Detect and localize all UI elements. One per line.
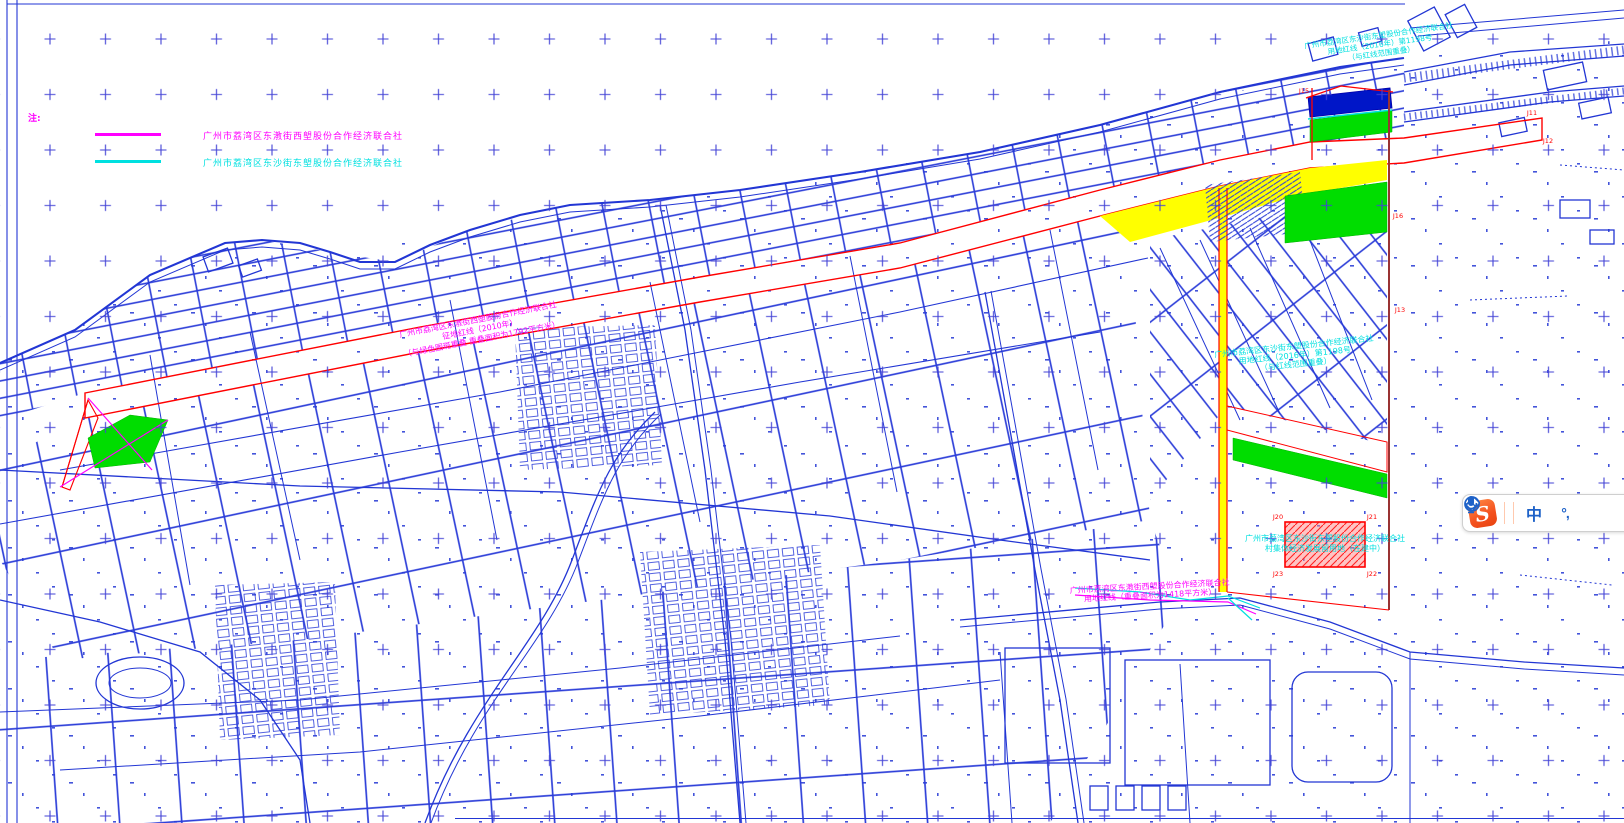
vertex-j20: J20 — [1272, 513, 1283, 521]
legend-swatch-cyan — [95, 160, 161, 163]
legend-label-east-coop: 广州市荔湾区东沙街东塱股份合作经济联合社 — [203, 156, 403, 169]
microphone-icon — [1463, 495, 1479, 514]
survey-grid-crosses — [0, 0, 1624, 823]
vertex-j16: J16 — [1392, 212, 1403, 220]
parcel-label-line2: 村集体经济发展留用地（在建中） — [1265, 543, 1385, 553]
vertex-j15: J15 — [1298, 87, 1309, 95]
vertex-j22: J22 — [1366, 570, 1377, 578]
vertex-j12: J12 — [1542, 137, 1553, 145]
legend-note: 注: — [28, 111, 41, 124]
sogou-input-toolbar[interactable]: S 中 °, — [1462, 494, 1624, 532]
legend-label-west-coop: 广州市荔湾区东漖街西塱股份合作经济联合社 — [203, 129, 403, 142]
vertex-j21: J21 — [1366, 513, 1377, 521]
chinese-mode-button[interactable]: 中 — [1523, 500, 1545, 526]
vertex-j11: J11 — [1526, 109, 1537, 117]
emoji-button[interactable] — [1585, 500, 1607, 526]
cad-application-window: 广州市荔湾区东漖街西塱股份合作经济联合社 征地红线（2010年） （与绿色图斑重… — [0, 0, 1624, 823]
legend-swatch-magenta — [95, 133, 161, 136]
toolbar-separator — [1504, 502, 1514, 524]
vertex-j23: J23 — [1272, 570, 1283, 578]
cad-drawing-canvas[interactable]: 广州市荔湾区东漖街西塱股份合作经济联合社 征地红线（2010年） （与绿色图斑重… — [0, 0, 1624, 823]
skin-eraser-button[interactable] — [1616, 500, 1624, 526]
punctuation-mode-button[interactable]: °, — [1554, 500, 1576, 526]
vertex-j13: J13 — [1394, 306, 1405, 314]
parcel-label-line1: 广州市荔湾区东沙街东塱股份合作经济联合社 — [1245, 533, 1405, 543]
